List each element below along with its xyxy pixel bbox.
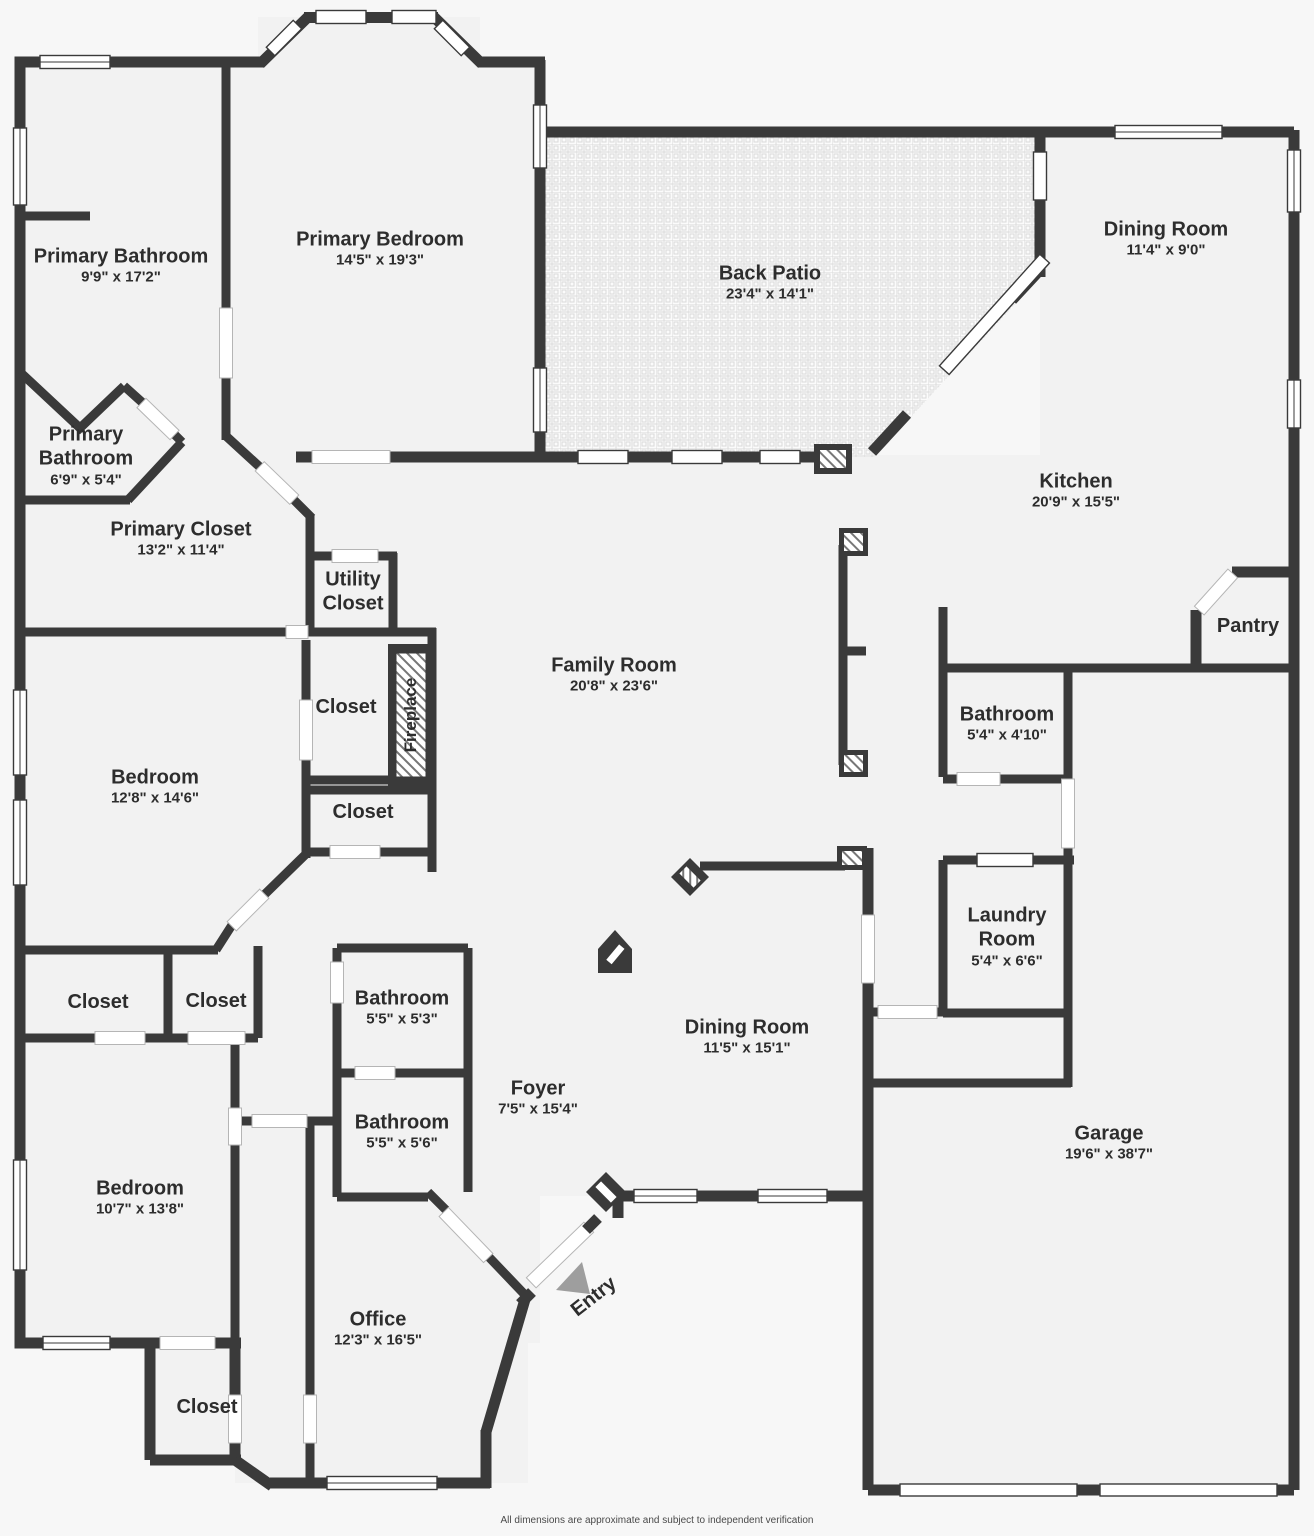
room-label-dining-room-1: Dining Room11'4" x 9'0" [1104,218,1228,261]
room-label-bathroom-3: Bathroom5'5" x 5'6" [355,1111,449,1154]
room-label-closet-2: Closet [332,800,393,824]
room-label-back-patio: Back Patio23'4" x 14'1" [719,262,821,305]
patio-corner-column-icon [814,444,852,474]
room-label-pantry: Pantry [1217,614,1279,638]
room-label-closet-5: Closet [176,1395,237,1419]
peninsula-column-bottom-icon [839,750,868,777]
room-label-family-room: Family Room20'8" x 23'6" [551,654,677,697]
room-label-closet-1: Closet [315,695,376,719]
room-label-office: Office12'3" x 16'5" [334,1308,422,1351]
room-label-utility-closet: Utility Closet [310,568,396,617]
room-label-kitchen: Kitchen20'9" x 15'5" [1032,470,1120,513]
room-label-primary-closet: Primary Closet13'2" x 11'4" [110,518,251,561]
room-label-dining-room-2: Dining Room11'5" x 15'1" [685,1016,809,1059]
room-label-primary-bathroom-1: Primary Bathroom9'9" x 17'2" [34,245,209,288]
disclaimer-text: All dimensions are approximate and subje… [501,1515,814,1526]
room-label-bathroom-1: Bathroom5'4" x 4'10" [960,703,1054,746]
peninsula-column-top-icon [839,528,868,556]
room-label-closet-3: Closet [67,990,128,1014]
room-label-garage: Garage19'6" x 38'7" [1065,1122,1153,1165]
room-label-closet-4: Closet [185,989,246,1013]
room-label-primary-bathroom-2: Primary Bathroom6'9" x 5'4" [28,422,144,489]
room-label-bedroom-2: Bedroom10'7" x 13'8" [96,1177,184,1220]
floor-plan: Primary Bathroom9'9" x 17'2" Primary Bed… [0,0,1314,1536]
room-label-laundry-room: Laundry Room5'4" x 6'6" [957,903,1057,970]
fireplace-label: Fireplace [401,678,421,753]
room-label-bathroom-2: Bathroom5'5" x 5'3" [355,987,449,1030]
room-label-foyer: Foyer7'5" x 15'4" [498,1077,578,1120]
dining-wall-column-icon [837,846,867,870]
room-label-primary-bedroom: Primary Bedroom14'5" x 19'3" [296,228,464,271]
room-label-bedroom-1: Bedroom12'8" x 14'6" [111,766,199,809]
